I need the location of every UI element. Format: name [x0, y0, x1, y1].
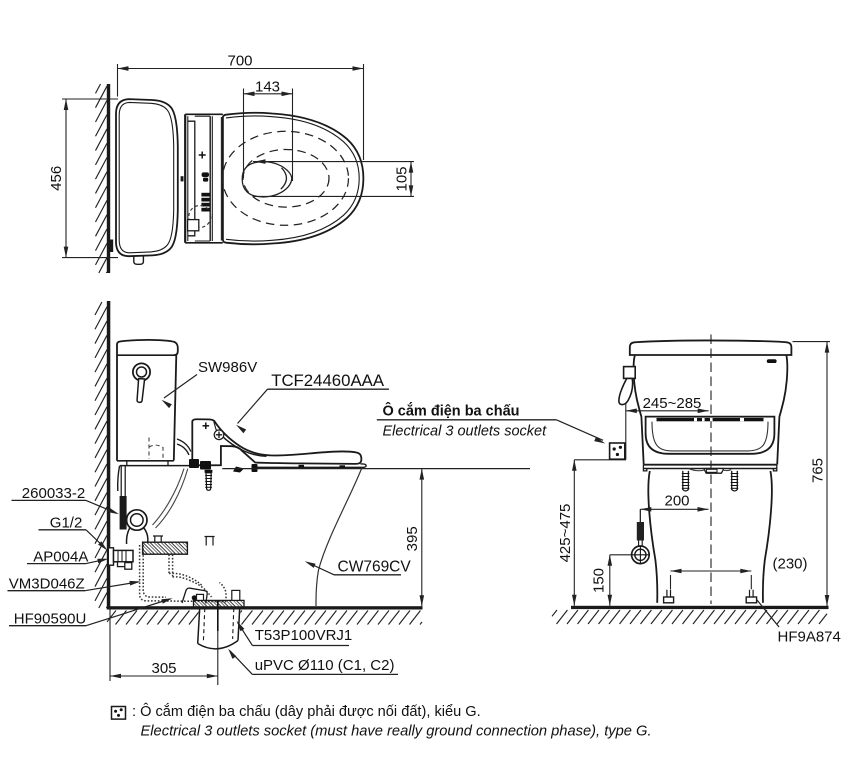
- svg-text:456: 456: [48, 166, 65, 191]
- svg-text:765: 765: [810, 458, 827, 483]
- svg-text:AP004A: AP004A: [33, 548, 88, 565]
- svg-text:105: 105: [394, 166, 411, 191]
- svg-text:260033-2: 260033-2: [22, 485, 85, 502]
- svg-text:305: 305: [151, 660, 176, 677]
- svg-text:HF90590U: HF90590U: [14, 610, 87, 627]
- svg-text:G1/2: G1/2: [50, 515, 83, 532]
- svg-text:395: 395: [404, 526, 421, 551]
- svg-text:HF9A874: HF9A874: [778, 629, 841, 646]
- svg-text:T53P100VRJ1: T53P100VRJ1: [255, 627, 353, 644]
- svg-text:Electrical 3 outlets socket: Electrical 3 outlets socket: [383, 424, 548, 440]
- svg-text:CW769CV: CW769CV: [338, 559, 412, 576]
- svg-text:VM3D046Z: VM3D046Z: [9, 575, 85, 592]
- svg-text:Electrical 3 outlets socket (m: Electrical 3 outlets socket (must have r…: [141, 724, 652, 740]
- svg-text:TCF24460AAA: TCF24460AAA: [271, 371, 385, 390]
- svg-text:uPVC Ø110 (C1, C2): uPVC Ø110 (C1, C2): [255, 657, 395, 674]
- svg-text:245~285: 245~285: [643, 395, 702, 412]
- svg-text:425~475: 425~475: [557, 504, 574, 563]
- svg-text:700: 700: [227, 53, 252, 70]
- svg-text:(230): (230): [773, 556, 808, 573]
- svg-text:SW986V: SW986V: [198, 359, 257, 376]
- svg-text:Ô cắm điện ba chấu: Ô cắm điện ba chấu: [383, 402, 520, 420]
- svg-text:143: 143: [255, 78, 280, 95]
- svg-text:: Ô cắm điện ba chấu (dây phải: : Ô cắm điện ba chấu (dây phải được nối …: [132, 703, 481, 720]
- svg-text:200: 200: [664, 493, 689, 510]
- svg-text:150: 150: [591, 568, 608, 593]
